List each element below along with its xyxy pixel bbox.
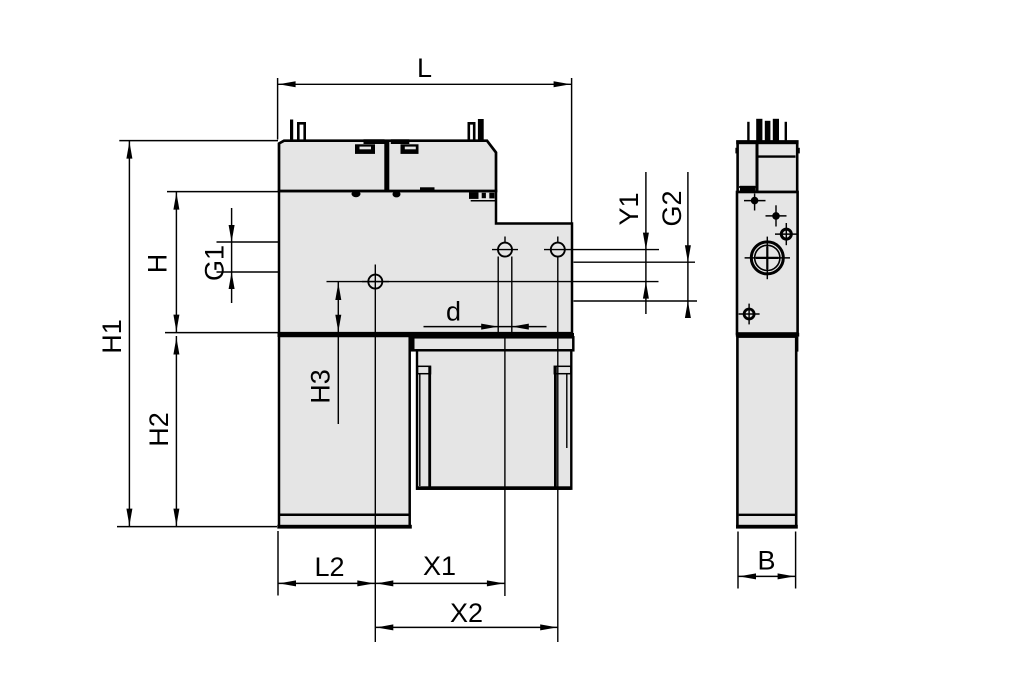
svg-text:B: B [757, 546, 775, 576]
svg-text:H: H [143, 254, 173, 274]
svg-text:X1: X1 [423, 551, 456, 581]
svg-text:X2: X2 [450, 598, 483, 628]
svg-text:H2: H2 [144, 412, 174, 447]
svg-text:d: d [446, 297, 461, 327]
svg-text:Y1: Y1 [614, 192, 644, 225]
svg-text:H3: H3 [306, 369, 336, 404]
svg-text:H1: H1 [97, 319, 127, 354]
svg-text:G1: G1 [200, 245, 230, 281]
svg-text:G2: G2 [657, 190, 687, 226]
svg-text:L: L [417, 53, 432, 83]
svg-text:L2: L2 [314, 552, 344, 582]
